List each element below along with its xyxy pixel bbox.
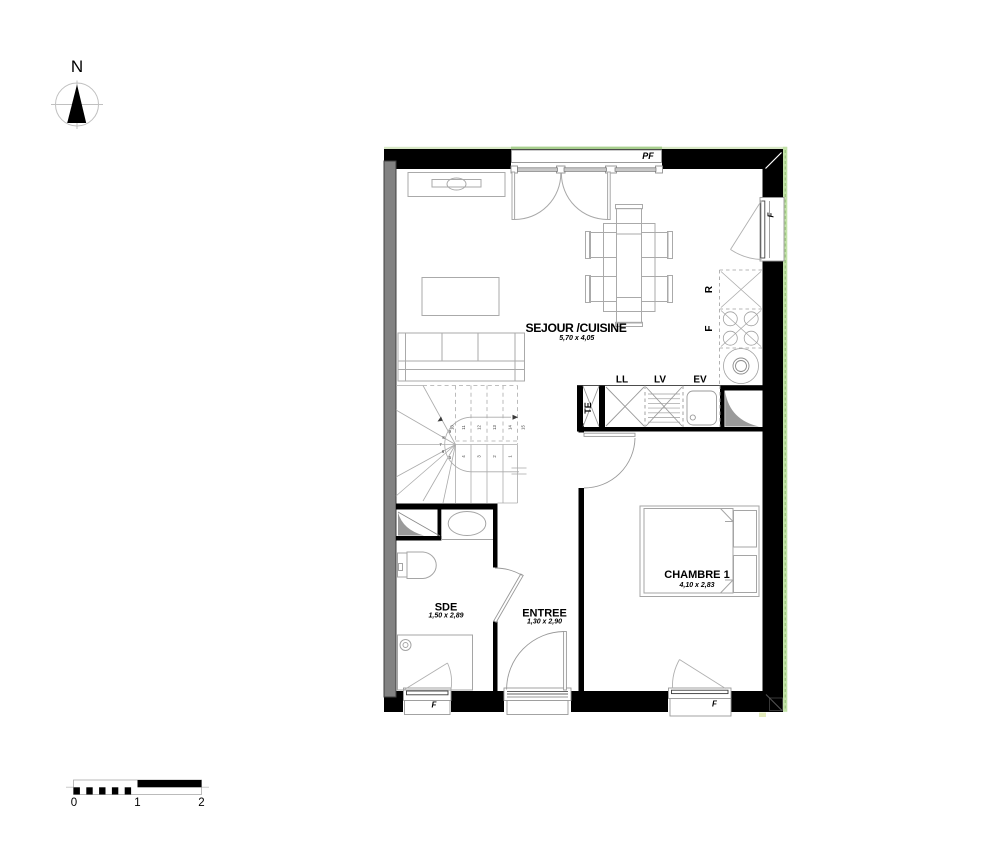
svg-text:SEJOUR /CUISINE: SEJOUR /CUISINE [525,321,626,335]
svg-text:CHAMBRE 1: CHAMBRE 1 [664,569,729,581]
svg-text:2: 2 [492,455,497,458]
svg-text:LV: LV [654,375,666,386]
svg-text:12: 12 [477,425,482,430]
svg-text:5,70 x 4,05: 5,70 x 4,05 [559,335,594,342]
svg-text:6: 6 [442,449,445,454]
svg-text:14: 14 [508,425,513,430]
svg-text:EV: EV [693,375,707,386]
svg-text:1: 1 [134,797,140,809]
svg-text:13: 13 [492,425,497,430]
svg-text:15: 15 [521,425,526,430]
svg-text:1,30 x 2,90: 1,30 x 2,90 [527,619,562,626]
svg-text:4,10 x 2,83: 4,10 x 2,83 [678,582,714,589]
svg-text:N: N [71,57,83,76]
svg-text:5: 5 [449,455,452,460]
svg-text:3: 3 [477,455,482,458]
svg-text:1,50 x 2,89: 1,50 x 2,89 [428,613,463,620]
svg-text:2: 2 [198,797,204,809]
svg-text:LL: LL [616,375,628,386]
svg-text:R: R [704,285,715,293]
svg-text:TE: TE [583,402,593,414]
svg-text:PF: PF [642,151,654,161]
svg-text:11: 11 [461,425,466,430]
svg-text:0: 0 [71,797,77,809]
svg-text:1: 1 [508,455,513,458]
svg-text:F: F [704,325,715,331]
svg-text:4: 4 [461,455,466,458]
